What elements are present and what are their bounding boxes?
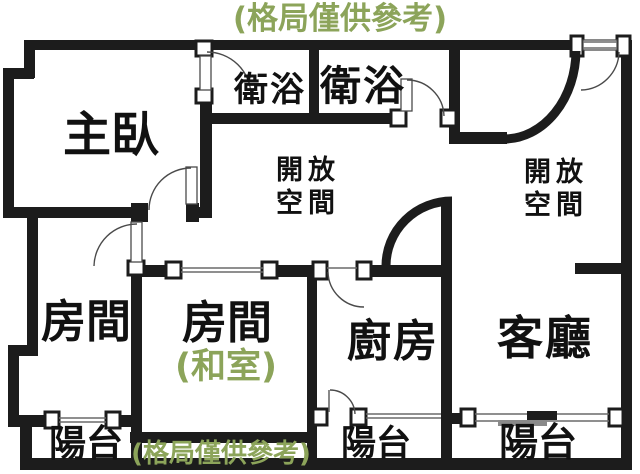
door-posts [131, 203, 199, 222]
sliding-panel-dark [527, 411, 557, 420]
wall-living-top-stub [575, 263, 621, 274]
label-living-room: 客廳 [497, 313, 593, 365]
wall-balcony1-left [20, 424, 32, 464]
wall-room-left-upper [27, 217, 38, 354]
frame-kitchen-door-left [313, 262, 327, 279]
label-balcony-middle: 陽台 [341, 425, 411, 464]
wall-entry-stub [449, 132, 507, 144]
label-master-bedroom: 主臥 [63, 109, 159, 163]
label-balcony-right: 陽台 [499, 422, 577, 466]
wall-master-bottom-a [3, 207, 133, 218]
note-top: (格局僅供參考) [233, 2, 447, 37]
label-bathroom-2: 衛浴 [320, 64, 406, 110]
frame-bath2-door-left [391, 110, 406, 126]
wall-kitchen-living-divider [441, 198, 452, 458]
frame-balcony3-left [461, 409, 475, 426]
label-kitchen: 廚房 [347, 317, 439, 366]
wall-room-left-right [131, 273, 142, 458]
label-open-space-left: 開放 空間 [276, 155, 340, 221]
frame-corridor-door-bottom [128, 261, 144, 275]
wall-bath-divider [309, 48, 319, 118]
post-master-door-left [131, 203, 148, 222]
label-room-tatami: 房間 [182, 298, 272, 348]
frame-bath1-door-top [196, 41, 212, 56]
arc-master-door [149, 168, 191, 210]
wall-master-left [3, 68, 14, 218]
wall-rooms-top-c [370, 265, 452, 277]
leaf-corridor-door [131, 222, 142, 262]
wall-bath-bottom [200, 113, 393, 124]
wall-top [33, 40, 579, 50]
wall-room-left-lower [8, 345, 19, 425]
frame-balcony2-door-left [313, 409, 327, 425]
arc-entry-main-door [505, 51, 576, 139]
label-balcony-left: 陽台 [49, 423, 123, 464]
label-open-space-right: 開放 空間 [524, 157, 588, 223]
leaf-bath1-door [200, 56, 211, 90]
note-bottom: (格局僅供參考) [131, 440, 311, 469]
label-room-left: 房間 [41, 297, 131, 347]
frame-kitchen-door-right [357, 262, 371, 279]
arc-entry-small [581, 52, 619, 90]
frame-balcony3-right [609, 409, 623, 426]
walls [3, 40, 632, 470]
frame-balcony2-window-left [351, 409, 366, 425]
frame-tatami-slide-left [166, 262, 181, 278]
wall-balcony1-divider-a [8, 415, 45, 427]
label-room-tatami-sub: (和室) [175, 348, 277, 387]
floor-plan: (格局僅供參考) 主臥 衛浴 衛浴 開放 空間 開放 空間 房間 房間 (和室)… [0, 0, 640, 474]
wall-right [621, 40, 632, 470]
frame-bath1-door-bottom [196, 89, 212, 103]
wall-tatami-kitchen-divider [307, 265, 317, 458]
post-master-door-right [186, 203, 199, 222]
label-bathroom-1: 衛浴 [234, 71, 306, 109]
leaf-master-door [186, 167, 197, 204]
frame-tatami-slide-right [262, 262, 277, 278]
